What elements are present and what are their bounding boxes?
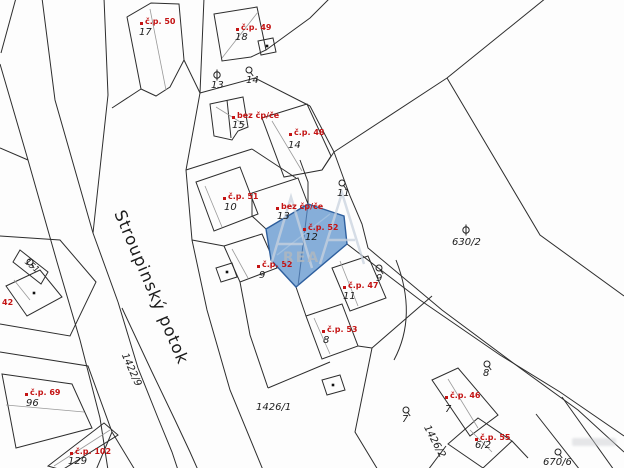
house-number-label: č.p. 102 — [75, 448, 111, 456]
watermark-smudge — [572, 438, 616, 446]
house-number-label: č.p. 46 — [450, 392, 480, 400]
parcel-number-label: 7 — [402, 415, 408, 425]
parcel-number-label: 11 — [343, 292, 356, 302]
parcel-number-label: 6/2 — [475, 441, 491, 451]
cadastral-map: č.p. 50č.p. 49bez čp/čeč.p. 48č.p. 51bez… — [0, 0, 624, 468]
house-number-label: č.p. 49 — [241, 24, 271, 32]
parcel-number-label: 1426/1 — [256, 403, 291, 413]
parcel-number-label: 630/2 — [452, 238, 481, 248]
watermark-text: REA — [283, 250, 320, 266]
parcel-number-label-rotated: 1422/9 — [119, 352, 142, 388]
map-labels: č.p. 50č.p. 49bez čp/čeč.p. 48č.p. 51bez… — [0, 0, 624, 468]
house-number-label: č.p. 69 — [30, 389, 60, 397]
house-number-label: č.p. 51 — [228, 193, 258, 201]
parcel-number-label: 96 — [26, 399, 39, 409]
parcel-number-label-rotated: 1426/2 — [421, 424, 446, 460]
house-number-label: bez čp/če — [237, 112, 279, 120]
house-number-label: 42 — [2, 299, 13, 307]
parcel-number-label: 17 — [139, 28, 152, 38]
house-number-label: č.p. 47 — [348, 282, 378, 290]
parcel-number-label: 15 — [232, 121, 245, 131]
house-number-label: bez čp/če — [281, 203, 323, 211]
parcel-number-label: 13 — [211, 81, 224, 91]
parcel-number-label: 13 — [277, 212, 290, 222]
stream-name-label: Stroupinský potok — [111, 208, 191, 367]
parcel-number-label: 12 — [305, 233, 318, 243]
parcel-number-label: 14 — [288, 141, 301, 151]
parcel-number-label: 9 — [259, 271, 265, 281]
house-number-label: č.p. 48 — [294, 129, 324, 137]
parcel-number-label: 18 — [235, 33, 248, 43]
house-number-label: č.p. 50 — [145, 18, 175, 26]
parcel-number-label: 8 — [323, 336, 329, 346]
parcel-number-label: 129 — [68, 457, 87, 467]
house-number-label: č.p. 53 — [327, 326, 357, 334]
parcel-number-label: 9 — [376, 274, 382, 284]
parcel-number-label: 10 — [224, 203, 237, 213]
parcel-number-label-rotated: 151 — [23, 258, 41, 275]
parcel-number-label: 8 — [483, 369, 489, 379]
house-number-label: č.p. 52 — [308, 224, 338, 232]
parcel-number-label: 670/6 — [543, 458, 572, 468]
parcel-number-label: 11 — [337, 189, 350, 199]
parcel-number-label: 7 — [445, 405, 451, 415]
parcel-number-label: 14 — [246, 76, 259, 86]
